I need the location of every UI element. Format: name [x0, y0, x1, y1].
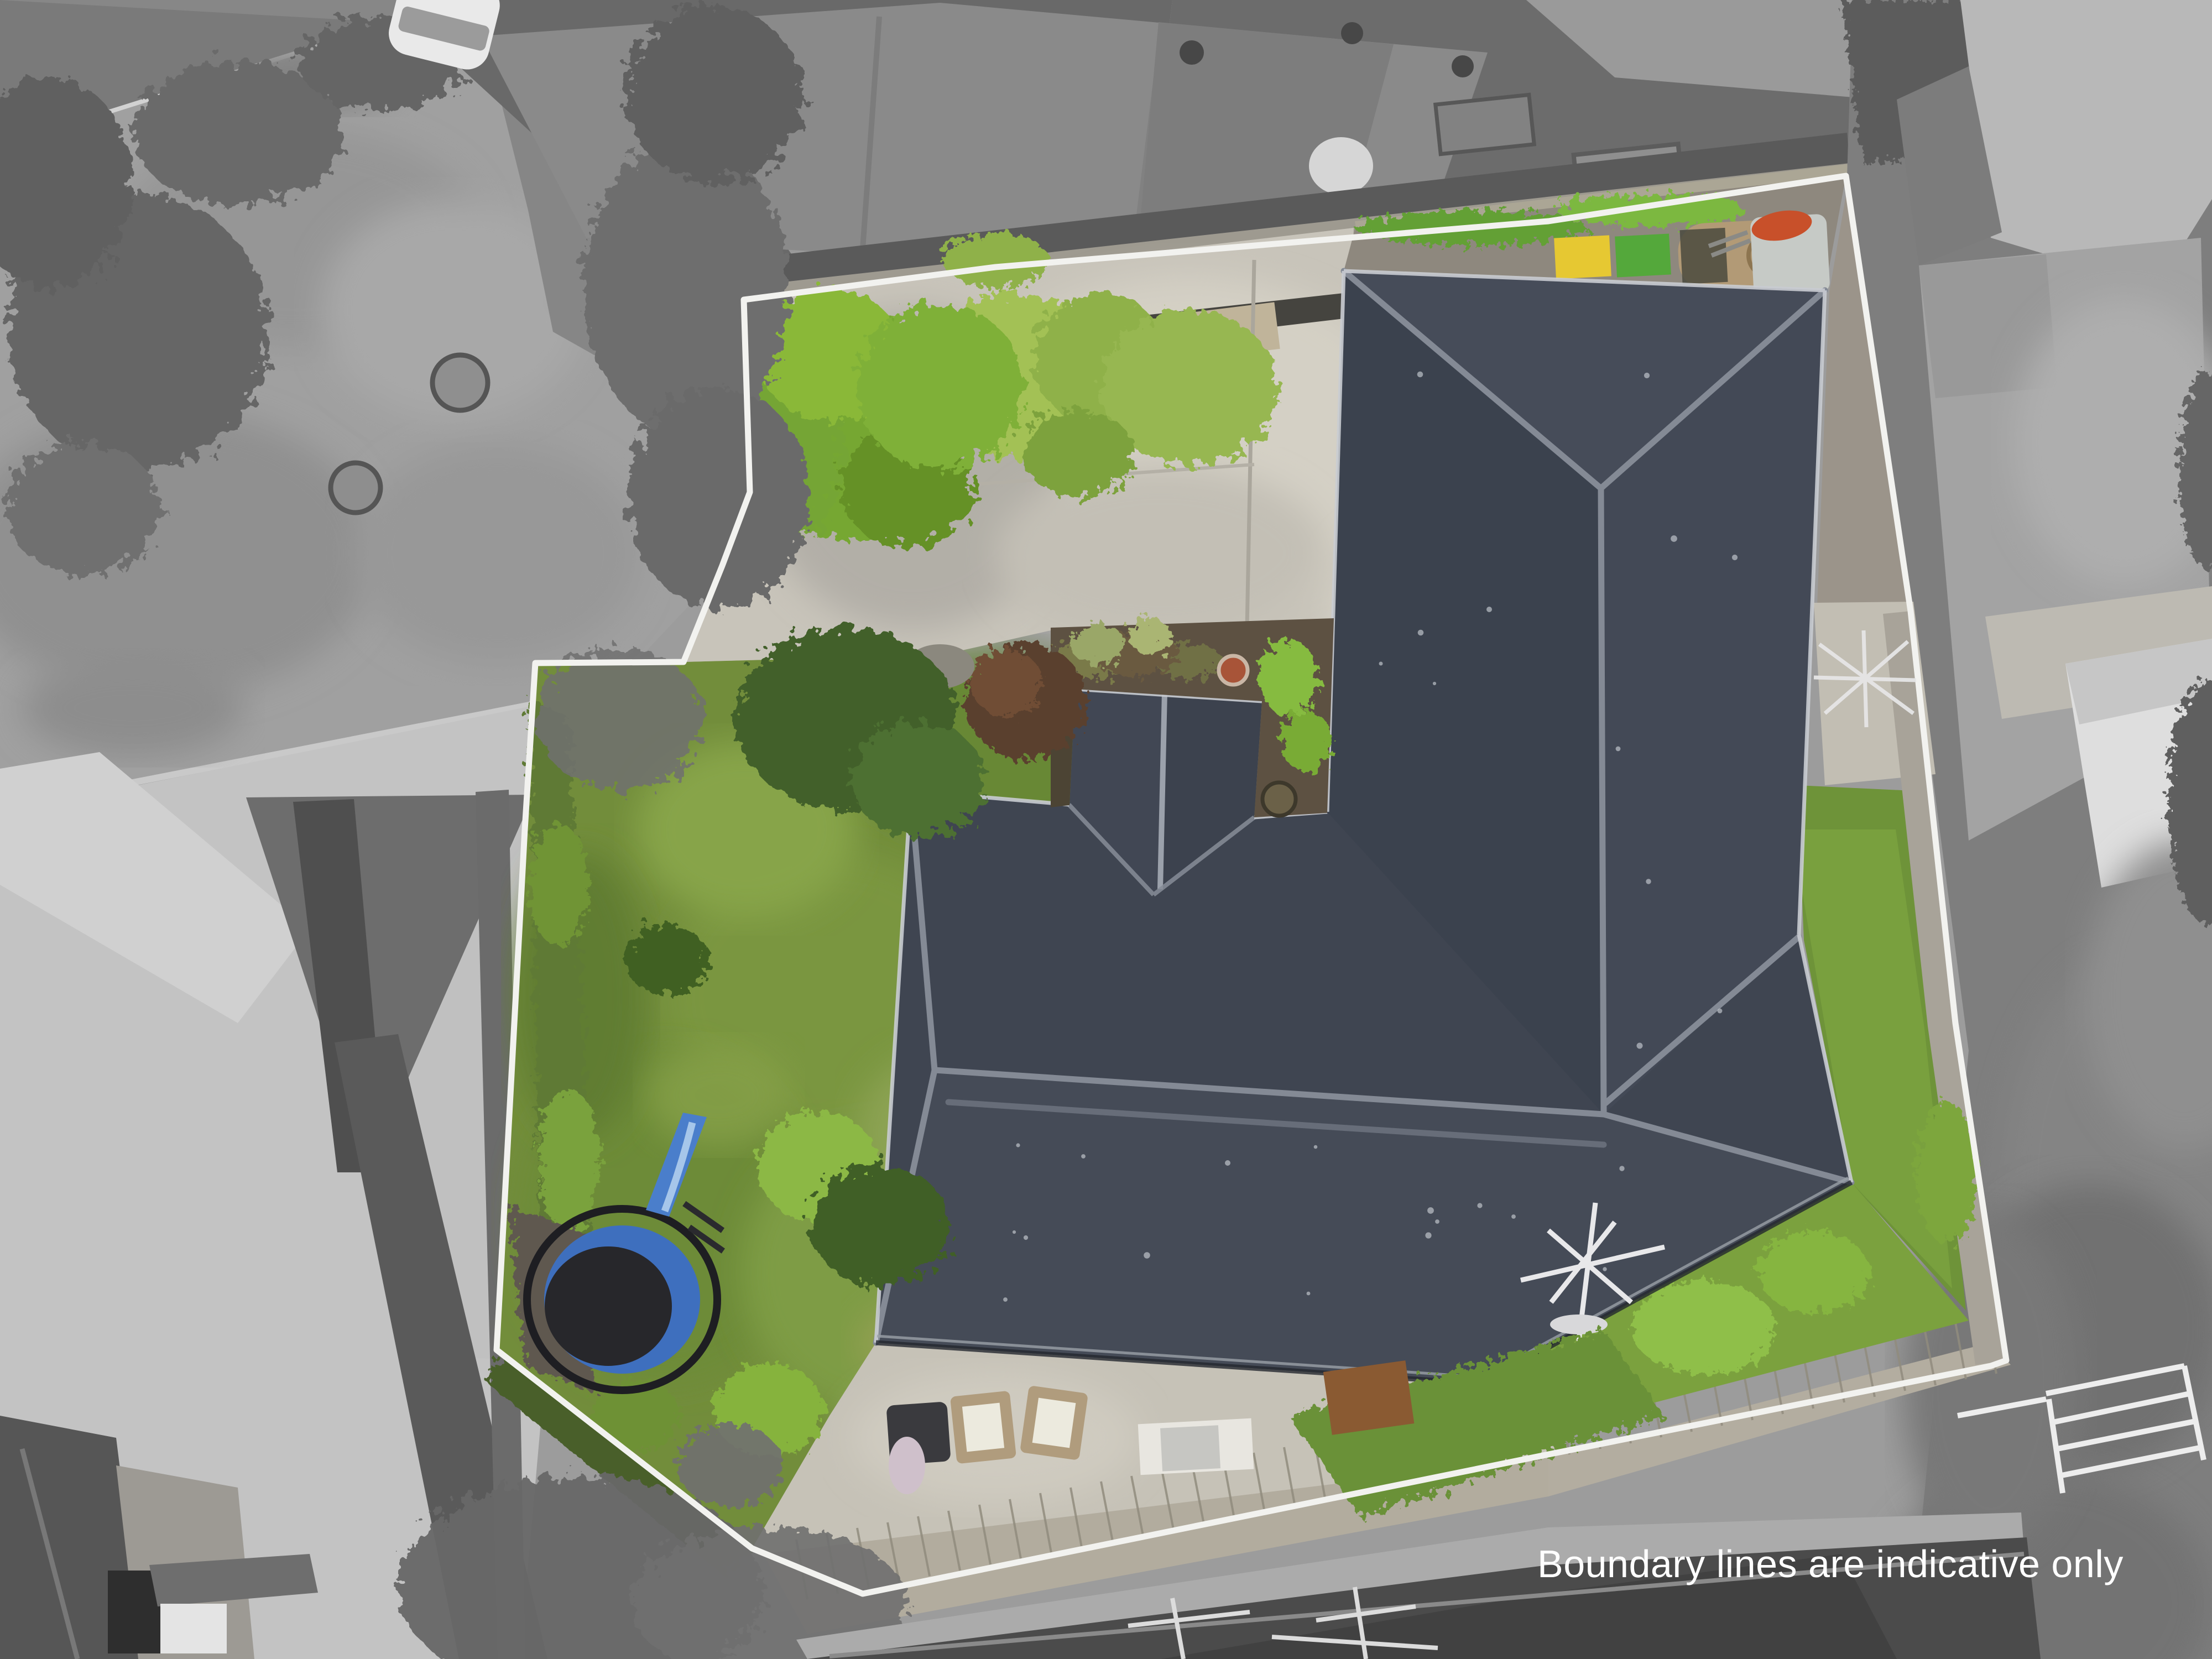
svg-text:Boundary lines are indicative: Boundary lines are indicative only [1537, 1542, 2124, 1585]
